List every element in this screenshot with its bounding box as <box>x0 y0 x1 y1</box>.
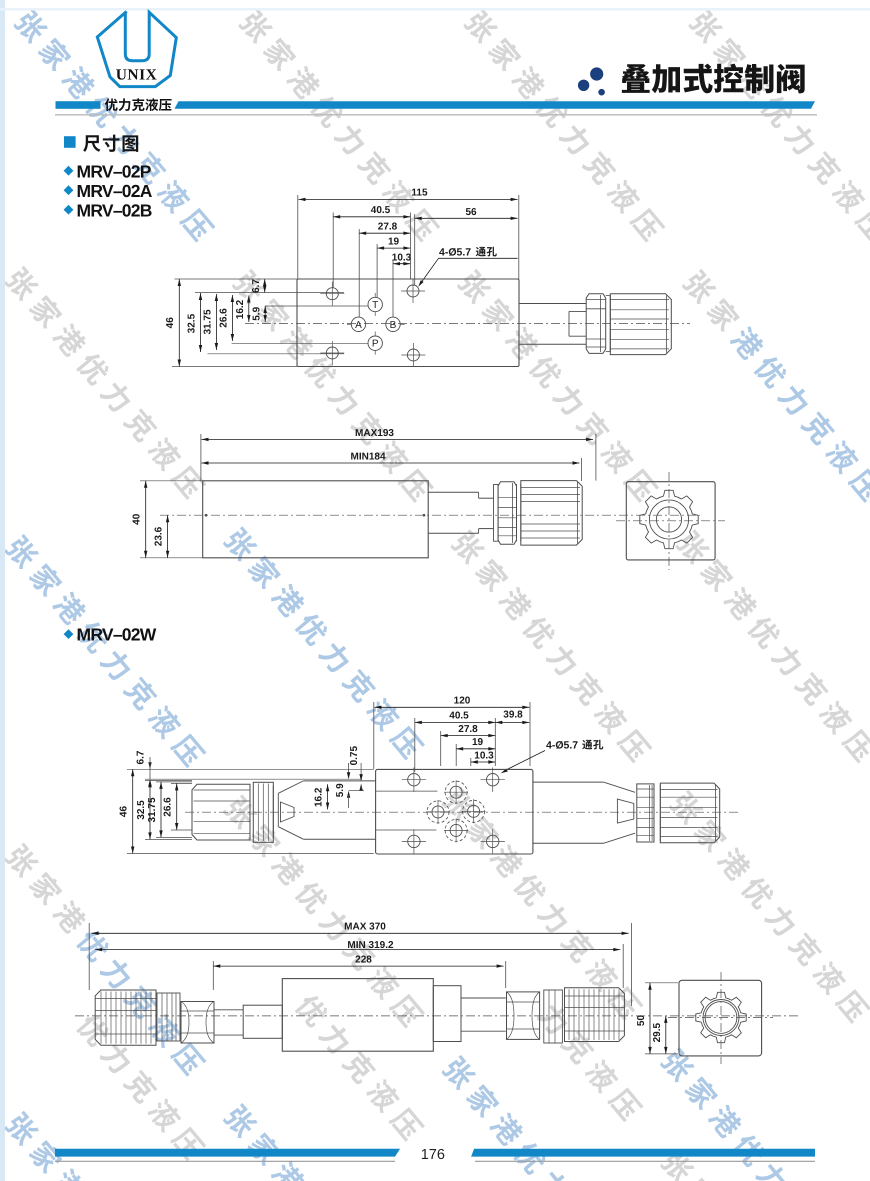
svg-text:176: 176 <box>421 1147 445 1163</box>
svg-text:4-Ø5.7: 4-Ø5.7 <box>546 740 578 752</box>
svg-text:31.75: 31.75 <box>203 309 214 334</box>
svg-text:MRV–02A: MRV–02A <box>77 181 153 201</box>
svg-text:10.3: 10.3 <box>392 252 412 263</box>
svg-text:40.5: 40.5 <box>371 205 391 216</box>
svg-text:T: T <box>372 300 378 311</box>
svg-text:5.9: 5.9 <box>335 783 346 797</box>
svg-text:MAX193: MAX193 <box>355 428 394 439</box>
svg-text:MRV–02W: MRV–02W <box>77 624 157 644</box>
svg-text:4-Ø5.7: 4-Ø5.7 <box>439 247 471 259</box>
svg-text:50: 50 <box>636 1015 647 1027</box>
svg-text:120: 120 <box>454 695 471 706</box>
svg-text:MAX 370: MAX 370 <box>344 922 386 933</box>
svg-text:27.8: 27.8 <box>378 222 398 233</box>
svg-text:UNIX: UNIX <box>116 67 158 84</box>
svg-text:46: 46 <box>165 317 176 329</box>
svg-text:39.8: 39.8 <box>503 710 523 721</box>
svg-text:228: 228 <box>355 954 372 965</box>
svg-text:MRV–02P: MRV–02P <box>77 162 152 182</box>
svg-text:26.6: 26.6 <box>163 797 174 817</box>
svg-text:23.6: 23.6 <box>154 526 165 546</box>
svg-text:19: 19 <box>472 737 484 748</box>
svg-text:56: 56 <box>465 207 477 218</box>
svg-text:10.3: 10.3 <box>474 751 494 762</box>
svg-text:5.9: 5.9 <box>251 306 262 320</box>
svg-text:0.75: 0.75 <box>349 746 360 766</box>
svg-text:26.6: 26.6 <box>219 308 230 328</box>
svg-text:6.7: 6.7 <box>251 279 262 293</box>
svg-text:19: 19 <box>388 237 400 248</box>
svg-text:27.8: 27.8 <box>458 724 478 735</box>
svg-text:MIN 319.2: MIN 319.2 <box>347 940 394 951</box>
svg-text:40: 40 <box>132 513 143 525</box>
svg-text:MIN184: MIN184 <box>350 451 385 462</box>
svg-text:B: B <box>390 320 397 331</box>
svg-text:16.2: 16.2 <box>235 299 246 319</box>
svg-text:P: P <box>372 339 379 350</box>
svg-text:6.7: 6.7 <box>136 750 147 764</box>
svg-text:32.5: 32.5 <box>136 800 147 820</box>
svg-text:40.5: 40.5 <box>449 711 469 722</box>
svg-text:31.75: 31.75 <box>147 797 158 822</box>
svg-text:MRV–02B: MRV–02B <box>77 201 152 221</box>
svg-text:16.2: 16.2 <box>314 787 325 807</box>
svg-text:32.5: 32.5 <box>187 313 198 333</box>
svg-text:115: 115 <box>411 187 428 198</box>
svg-text:29.5: 29.5 <box>652 1023 663 1043</box>
svg-text:46: 46 <box>119 806 130 818</box>
svg-text:A: A <box>355 320 362 331</box>
